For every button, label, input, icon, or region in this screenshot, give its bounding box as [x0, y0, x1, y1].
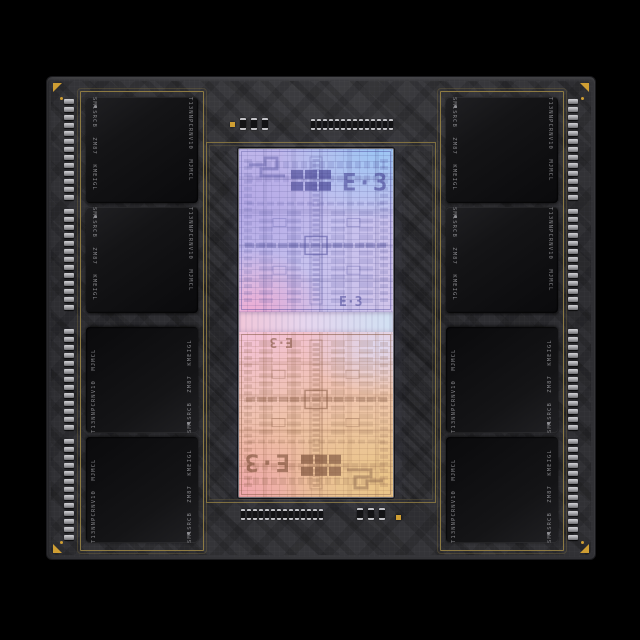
chip-label-right: T13NNPCRNV10 MJMCL	[547, 207, 553, 313]
solder-pad	[568, 511, 578, 516]
memory-chip-8: SM1SRCB ZM87 KMEIGL T13NNPCRNV10 MJMCL	[446, 437, 558, 543]
capacitor	[353, 119, 357, 130]
solder-pad	[64, 345, 74, 350]
capacitor	[311, 119, 315, 130]
solder-pad	[64, 329, 74, 334]
solder-pad	[64, 209, 74, 214]
chip-label-left: SM1SRCB ZM87 KMEIGL	[547, 327, 553, 433]
memory-chip-7: SM1SRCB ZM87 KMEIGL T13NNPCRNV10 MJMCL	[446, 327, 558, 433]
solder-pad	[568, 297, 578, 302]
solder-pad	[64, 115, 74, 120]
gold-fiducial-dot	[581, 541, 584, 544]
capacitor	[301, 509, 305, 520]
capacitor	[368, 508, 374, 520]
solder-pad	[568, 503, 578, 508]
capacitor	[265, 509, 269, 520]
solder-pad	[64, 353, 74, 358]
solder-pad	[64, 409, 74, 414]
capacitor	[240, 118, 246, 130]
solder-pad	[64, 535, 74, 540]
capacitor	[241, 509, 245, 520]
capacitor	[277, 509, 281, 520]
solder-pad	[568, 155, 578, 160]
memory-chip-1: SM1SRCB ZM87 KMEIGL T13NNPCRNV10 MJMCL	[86, 97, 198, 203]
solder-pad	[64, 377, 74, 382]
capacitor	[365, 119, 369, 130]
solder-pad	[64, 179, 74, 184]
solder-pad	[64, 479, 74, 484]
capacitor	[341, 119, 345, 130]
chip-label-left: SM1SRCB ZM87 KMEIGL	[547, 437, 553, 543]
solder-pad	[568, 337, 578, 342]
chip-label-left: SM1SRCB ZM87 KMEIGL	[451, 207, 457, 313]
capacitor	[347, 119, 351, 130]
chip-label-left: SM1SRCB ZM87 KMEIGL	[187, 327, 193, 433]
solder-pad	[568, 417, 578, 422]
pad-column	[568, 99, 578, 200]
solder-pad	[64, 447, 74, 452]
solder-pad	[568, 171, 578, 176]
solder-pad	[64, 273, 74, 278]
solder-pad	[568, 273, 578, 278]
solder-pad	[64, 297, 74, 302]
capacitor	[262, 118, 268, 130]
capacitor	[323, 119, 327, 130]
capacitor-row	[241, 509, 323, 520]
solder-pad	[568, 187, 578, 192]
die-circuit-pattern: E·3 E·3	[239, 149, 393, 312]
solder-pad	[64, 147, 74, 152]
solder-pad	[64, 369, 74, 374]
solder-pad	[568, 225, 578, 230]
solder-pad	[64, 217, 74, 222]
solder-pad	[64, 487, 74, 492]
solder-pad	[568, 409, 578, 414]
solder-pad	[64, 99, 74, 104]
pad-column	[64, 329, 74, 430]
solder-pad	[568, 241, 578, 246]
capacitor	[377, 119, 381, 130]
memory-chip-5: SM1SRCB ZM87 KMEIGL T13NNPCRNV10 MJMCL	[446, 97, 558, 203]
solder-pad	[568, 353, 578, 358]
capacitor	[283, 509, 287, 520]
solder-pad	[64, 131, 74, 136]
solder-pad	[64, 361, 74, 366]
solder-pad	[64, 337, 74, 342]
solder-pad	[64, 305, 74, 310]
solder-pad	[64, 463, 74, 468]
capacitor	[379, 508, 385, 520]
solder-pad	[568, 425, 578, 430]
capacitor	[253, 509, 257, 520]
solder-pad	[64, 439, 74, 444]
chip-label-left: SM1SRCB ZM87 KMEIGL	[187, 437, 193, 543]
solder-pad	[568, 479, 578, 484]
gold-fiducial-dot	[60, 97, 63, 100]
corner-fiducial-icon	[53, 83, 62, 92]
die-bottom-half	[239, 332, 393, 497]
solder-pad	[568, 195, 578, 200]
solder-pad	[64, 241, 74, 246]
solder-pad	[64, 123, 74, 128]
solder-pad	[64, 385, 74, 390]
solder-pad	[568, 385, 578, 390]
solder-pad	[568, 305, 578, 310]
solder-pad	[64, 417, 74, 422]
solder-pad	[568, 209, 578, 214]
solder-pad	[568, 377, 578, 382]
solder-pad	[568, 217, 578, 222]
solder-pad	[568, 329, 578, 334]
solder-pad	[568, 471, 578, 476]
solder-pad	[568, 107, 578, 112]
capacitor	[329, 119, 333, 130]
solder-pad	[568, 361, 578, 366]
solder-pad	[568, 123, 578, 128]
capacitor	[307, 509, 311, 520]
corner-fiducial-icon	[53, 544, 62, 553]
solder-pad	[64, 107, 74, 112]
capacitor	[313, 509, 317, 520]
solder-pad	[64, 171, 74, 176]
chip-label-right: T13NNPCRNV10 MJMCL	[451, 437, 457, 543]
solder-pad	[568, 249, 578, 254]
capacitor	[251, 118, 257, 130]
solder-pad	[568, 265, 578, 270]
pad-column	[64, 209, 74, 310]
die-circuit-pattern	[239, 332, 393, 497]
pad-column	[568, 209, 578, 310]
solder-pad	[64, 233, 74, 238]
solder-pad	[568, 495, 578, 500]
solder-pad	[568, 131, 578, 136]
solder-pad	[64, 249, 74, 254]
chip-label-right: T13NNPCRNV10 MJMCL	[187, 97, 193, 203]
solder-pad	[64, 527, 74, 532]
solder-pad	[64, 281, 74, 286]
solder-pad	[568, 527, 578, 532]
solder-pad	[64, 257, 74, 262]
solder-pad	[568, 463, 578, 468]
solder-pad	[64, 425, 74, 430]
chip-label-right: T13NNPCRNV10 MJMCL	[91, 327, 97, 433]
solder-pad	[64, 511, 74, 516]
solder-pad	[64, 155, 74, 160]
gold-fiducial-dot	[581, 97, 584, 100]
solder-pad	[568, 519, 578, 524]
chip-label-right: T13NNPCRNV10 MJMCL	[187, 207, 193, 313]
chip-label-right: T13NNPCRNV10 MJMCL	[451, 327, 457, 433]
chip-package-substrate: SM1SRCB ZM87 KMEIGL T13NNPCRNV10 MJMCL S…	[46, 76, 596, 560]
solder-pad	[64, 495, 74, 500]
corner-fiducial-icon	[580, 544, 589, 553]
solder-pad	[568, 447, 578, 452]
solder-pad	[568, 233, 578, 238]
solder-pad	[568, 257, 578, 262]
solder-pad	[568, 439, 578, 444]
solder-pad	[64, 401, 74, 406]
chip-label-left: SM1SRCB ZM87 KMEIGL	[91, 207, 97, 313]
capacitor-group	[357, 508, 385, 520]
gold-fiducial-square	[396, 515, 401, 520]
capacitor	[247, 509, 251, 520]
solder-pad	[64, 503, 74, 508]
pad-column	[568, 329, 578, 430]
solder-pad	[568, 535, 578, 540]
solder-pad	[568, 147, 578, 152]
solder-pad	[568, 139, 578, 144]
capacitor	[317, 119, 321, 130]
gold-fiducial-square	[230, 122, 235, 127]
processor-die: E·3 E·3	[238, 148, 394, 498]
solder-pad	[64, 393, 74, 398]
solder-pad	[568, 455, 578, 460]
gold-fiducial-dot	[60, 541, 63, 544]
chip-label-left: SM1SRCB ZM87 KMEIGL	[451, 97, 457, 203]
solder-pad	[64, 265, 74, 270]
solder-pad	[64, 471, 74, 476]
solder-pad	[568, 281, 578, 286]
capacitor	[259, 509, 263, 520]
capacitor-group	[240, 118, 268, 130]
ultrafusion-seam	[239, 312, 393, 332]
pad-column	[64, 439, 74, 540]
capacitor	[289, 509, 293, 520]
memory-chip-3: SM1SRCB ZM87 KMEIGL T13NNPCRNV10 MJMCL	[86, 327, 198, 433]
solder-pad	[568, 345, 578, 350]
solder-pad	[64, 187, 74, 192]
solder-pad	[64, 455, 74, 460]
solder-pad	[64, 289, 74, 294]
chip-label-left: SM1SRCB ZM87 KMEIGL	[91, 97, 97, 203]
die-top-half: E·3 E·3	[239, 149, 393, 312]
capacitor	[389, 119, 393, 130]
solder-pad	[568, 369, 578, 374]
pad-column	[568, 439, 578, 540]
solder-pad	[64, 225, 74, 230]
capacitor-row	[311, 119, 393, 130]
solder-pad	[568, 179, 578, 184]
capacitor	[295, 509, 299, 520]
memory-chip-2: SM1SRCB ZM87 KMEIGL T13NNPCRNV10 MJMCL	[86, 207, 198, 313]
corner-fiducial-icon	[580, 83, 589, 92]
chip-label-right: T13NNPCRNV10 MJMCL	[547, 97, 553, 203]
solder-pad	[568, 401, 578, 406]
capacitor	[359, 119, 363, 130]
capacitor	[383, 119, 387, 130]
capacitor	[357, 508, 363, 520]
solder-pad	[568, 487, 578, 492]
solder-pad	[568, 393, 578, 398]
capacitor	[319, 509, 323, 520]
solder-pad	[568, 115, 578, 120]
capacitor	[335, 119, 339, 130]
solder-pad	[64, 519, 74, 524]
solder-pad	[568, 163, 578, 168]
pad-column	[64, 99, 74, 200]
capacitor	[271, 509, 275, 520]
solder-pad	[64, 139, 74, 144]
solder-pad	[64, 163, 74, 168]
capacitor	[371, 119, 375, 130]
chip-label-right: T13NNPCRNV10 MJMCL	[91, 437, 97, 543]
memory-chip-6: SM1SRCB ZM87 KMEIGL T13NNPCRNV10 MJMCL	[446, 207, 558, 313]
solder-pad	[568, 289, 578, 294]
solder-pad	[64, 195, 74, 200]
solder-pad	[568, 99, 578, 104]
memory-chip-4: SM1SRCB ZM87 KMEIGL T13NNPCRNV10 MJMCL	[86, 437, 198, 543]
